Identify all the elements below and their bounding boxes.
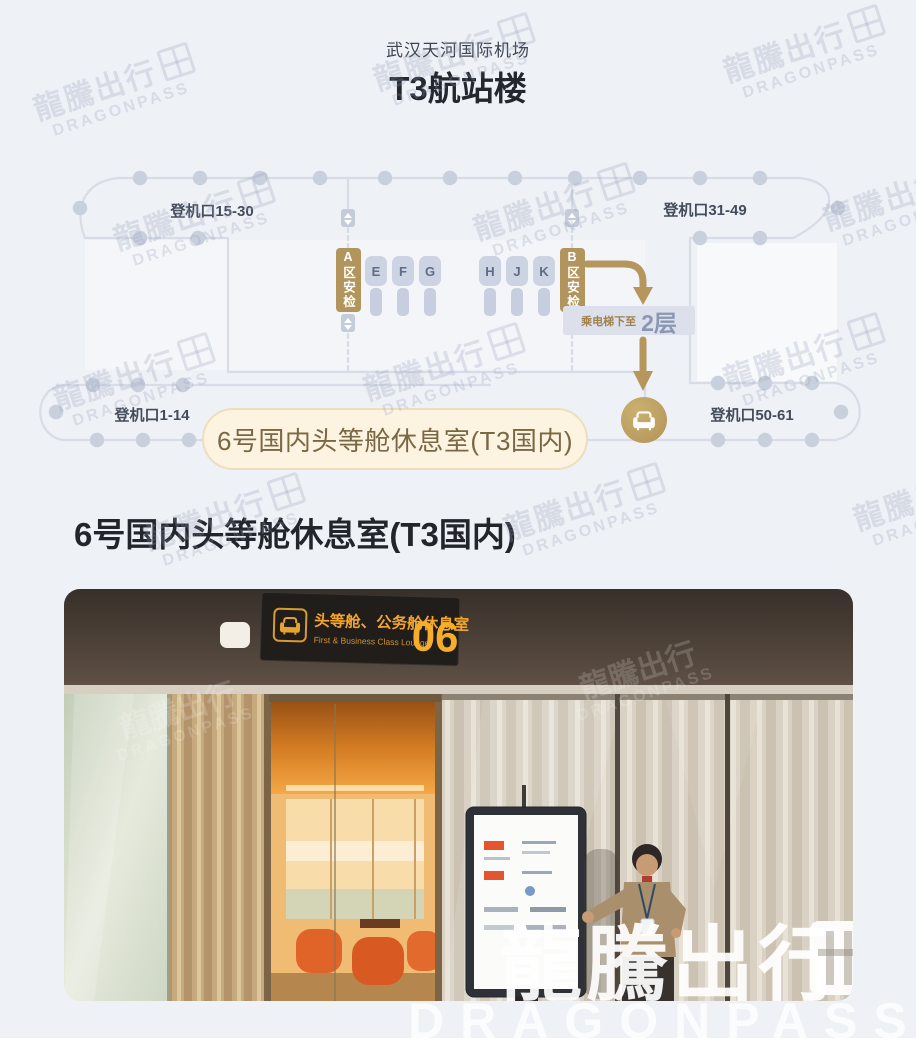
lounge-guide-page: 龍騰出行 DRAGONPASS 龍騰出行 DRAGONPASS 龍騰出行 DRA…: [0, 0, 916, 1064]
door-frame: [435, 694, 442, 1001]
gate-label-50-61: 登机口50-61: [677, 404, 827, 425]
armchair-icon: [631, 407, 657, 433]
door-frame: [264, 694, 271, 1001]
window-mullion: [414, 799, 416, 919]
elevator-icon: [565, 209, 579, 227]
map-block: [697, 243, 837, 381]
terminal-map: E F G H J: [38, 148, 878, 488]
staff-face: [636, 854, 658, 876]
pier-letter: J: [513, 264, 520, 279]
elevator-floor-badge: 乘电梯下至 2层: [563, 306, 695, 335]
cove-light: [286, 785, 424, 791]
lounge-chair: [352, 937, 404, 985]
elevator-icon: [341, 314, 355, 332]
watermark-cn-large: 龍騰出行: [500, 920, 844, 1001]
photo-watermark-large: 龍騰出行: [500, 920, 853, 1001]
map-block: [85, 240, 228, 370]
screen-logo-blue: [525, 886, 535, 896]
pier-letter: G: [425, 264, 435, 279]
screen-text-line: [522, 841, 556, 844]
pier-letter: E: [372, 264, 381, 279]
screen-bracket: [522, 785, 526, 809]
screen-text-line: [484, 907, 518, 912]
lounge-photo-scene: 头等舱、公务舱休息室 First & Business Class Lounge…: [64, 589, 853, 1001]
floor-number: 2层: [641, 304, 677, 338]
lounge-callout-pill: 6号国内头等舱休息室(T3国内): [202, 408, 588, 470]
interior-table: [360, 919, 400, 928]
window-mullion: [330, 799, 332, 919]
screen-text-line: [484, 857, 510, 860]
gate-label-1-14: 登机口1-14: [77, 404, 227, 425]
arrow-head-icon: [633, 371, 653, 391]
window-sky: [286, 841, 424, 861]
window-greenery: [286, 889, 424, 919]
screen-logo-red: [484, 841, 504, 850]
door-glass-edge: [334, 704, 336, 1001]
pier-letter: K: [539, 264, 549, 279]
security-badge-a: A区安检: [336, 248, 361, 312]
lounge-sign: 头等舱、公务舱休息室 First & Business Class Lounge…: [260, 592, 470, 666]
airport-name: 武汉天河国际机场: [0, 36, 916, 61]
terminal-title: T3航站楼: [0, 62, 916, 110]
interior-ceiling: [269, 694, 441, 794]
bottom-watermark: DRAGONPASS: [408, 992, 916, 1050]
elevator-note: 乘电梯下至: [581, 313, 636, 329]
lounge-section-title: 6号国内头等舱休息室(T3国内): [74, 508, 516, 556]
screen-text-line: [522, 851, 550, 854]
pier-letter: F: [399, 264, 407, 279]
gate-label-31-49: 登机口31-49: [630, 199, 780, 220]
door-transom: [269, 694, 441, 702]
wall-sensor: [220, 622, 250, 648]
lounge-photo: 头等舱、公务舱休息室 First & Business Class Lounge…: [64, 589, 853, 1001]
sign-number: 06: [411, 612, 459, 660]
lounge-location-marker: [621, 397, 667, 443]
dragonpass-logo-icon: [810, 921, 853, 995]
window-mullion: [372, 799, 374, 919]
screen-text-line: [530, 907, 566, 912]
gate-label-15-30: 登机口15-30: [137, 200, 287, 221]
pier-letter: H: [485, 264, 494, 279]
elevator-icon: [341, 209, 355, 227]
screen-text-line: [522, 871, 552, 874]
screen-logo-red: [484, 871, 504, 880]
security-badge-b: B区安检: [560, 248, 585, 312]
